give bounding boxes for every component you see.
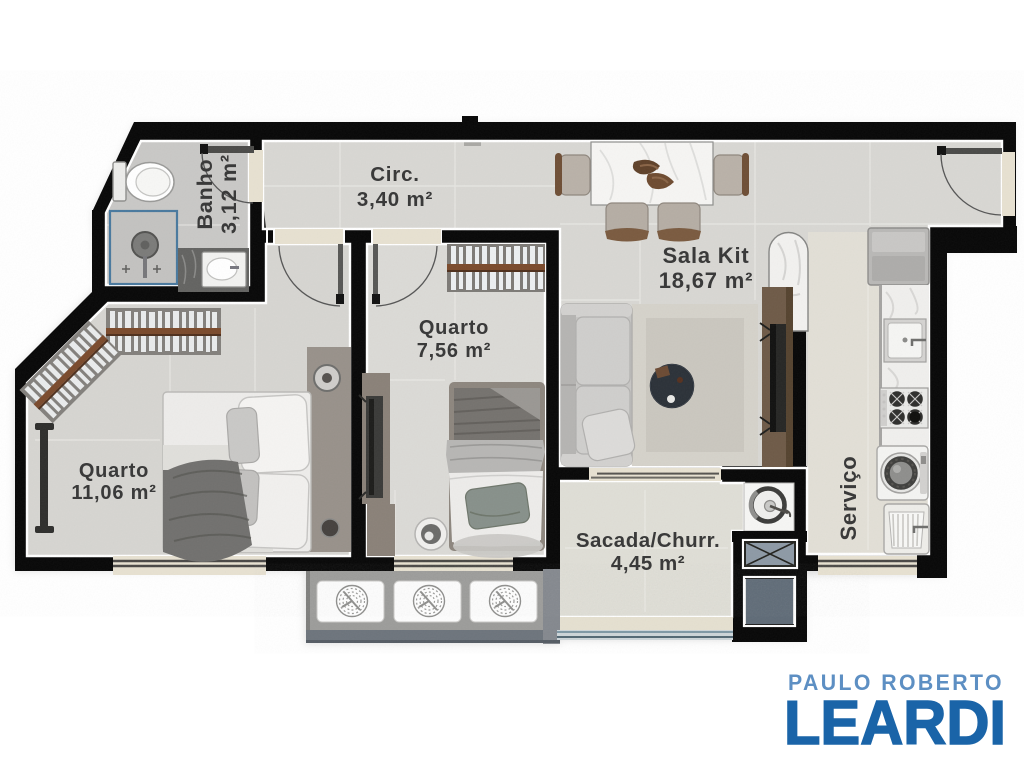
svg-text:LEARDI: LEARDI — [784, 689, 1006, 758]
svg-text:Banho3,12 m²: Banho3,12 m² — [193, 154, 241, 234]
svg-text:Quarto11,06 m²: Quarto11,06 m² — [71, 460, 156, 504]
svg-text:Serviço: Serviço — [836, 455, 861, 540]
svg-text:Sala Kit18,67 m²: Sala Kit18,67 m² — [659, 243, 753, 293]
svg-text:Quarto7,56 m²: Quarto7,56 m² — [417, 317, 492, 362]
